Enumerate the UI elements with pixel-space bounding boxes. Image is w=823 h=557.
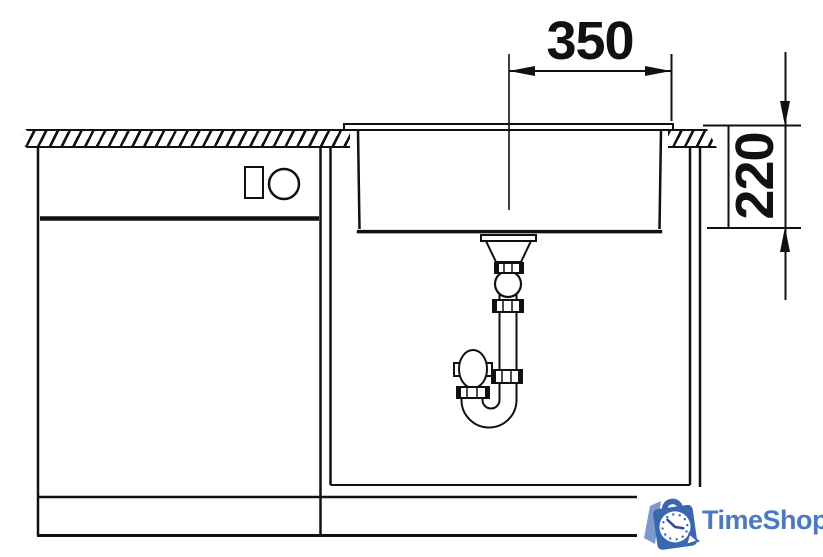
- compression-nut: [457, 387, 489, 398]
- countertop-section-left: [21, 129, 350, 148]
- drain-trap-drawing: [454, 235, 536, 428]
- arrow-left-icon: [509, 66, 535, 76]
- control-panel-knob: [269, 169, 299, 199]
- timeshop-logo-text: TimeShop: [702, 507, 823, 534]
- shopping-bag-icon: [642, 491, 700, 553]
- cabinet-linework: [37, 148, 700, 536]
- strainer-funnel: [486, 241, 531, 262]
- control-panel-rect: [245, 167, 263, 198]
- trap-outlet-loop: [459, 350, 487, 388]
- compression-nut: [492, 370, 522, 383]
- sink-installation-diagram: 350 220 TimeShop: [0, 0, 823, 557]
- dimension-depth-label: 220: [728, 120, 782, 232]
- technical-linework: [0, 0, 823, 557]
- compression-nut: [493, 300, 523, 312]
- ball-joint: [495, 271, 521, 297]
- timeshop-logo: TimeShop: [637, 487, 823, 557]
- compression-nut: [495, 263, 523, 273]
- arrow-right-icon: [645, 66, 671, 76]
- dimension-width-label: 350: [504, 15, 676, 67]
